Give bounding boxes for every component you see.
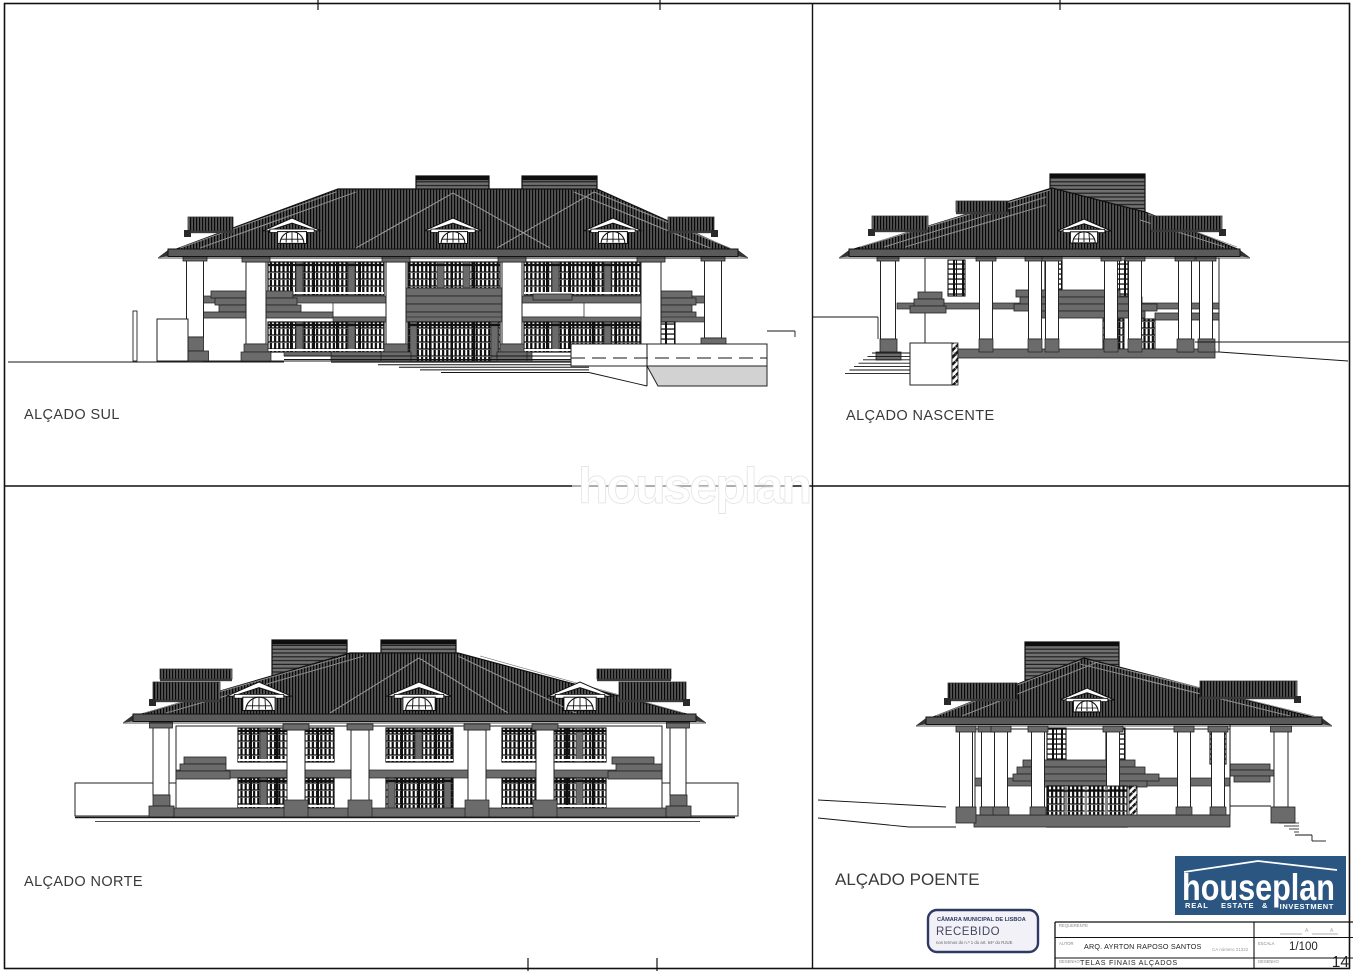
svg-text:&: & <box>1262 901 1268 910</box>
svg-text:REQUERENTE: REQUERENTE <box>1059 923 1088 928</box>
svg-text:ALÇADO NASCENTE: ALÇADO NASCENTE <box>846 408 995 424</box>
svg-text:TELAS FINAIS ALÇADOS: TELAS FINAIS ALÇADOS <box>1080 958 1178 967</box>
svg-text:REAL: REAL <box>1185 901 1209 910</box>
svg-text:ESCALA: ESCALA <box>1258 941 1275 946</box>
svg-text:DESENHO: DESENHO <box>1258 959 1279 964</box>
svg-text:AUTOR: AUTOR <box>1059 941 1074 946</box>
svg-text:RECEBIDO: RECEBIDO <box>936 926 1000 938</box>
svg-text:CA número 21322: CA número 21322 <box>1212 947 1249 952</box>
svg-text:INVESTMENT: INVESTMENT <box>1280 902 1334 911</box>
svg-text:14: 14 <box>1332 954 1350 971</box>
svg-text:houseplan: houseplan <box>578 458 810 514</box>
svg-text:1/100: 1/100 <box>1289 941 1318 953</box>
svg-text:DESENHO: DESENHO <box>1059 959 1080 964</box>
svg-text:ALÇADO POENTE: ALÇADO POENTE <box>835 870 980 889</box>
svg-text:CÂMARA MUNICIPAL DE LISBOA: CÂMARA MUNICIPAL DE LISBOA <box>937 916 1026 923</box>
svg-text:nos termos do n.º 1 do art. 64: nos termos do n.º 1 do art. 64º do RJUE <box>936 940 1013 945</box>
svg-text:ALÇADO SUL: ALÇADO SUL <box>24 407 120 423</box>
svg-text:ESTATE: ESTATE <box>1221 901 1254 910</box>
svg-text:ARQ. AYRTON RAPOSO SANTOS: ARQ. AYRTON RAPOSO SANTOS <box>1084 942 1202 951</box>
svg-text:ALÇADO NORTE: ALÇADO NORTE <box>24 874 143 890</box>
